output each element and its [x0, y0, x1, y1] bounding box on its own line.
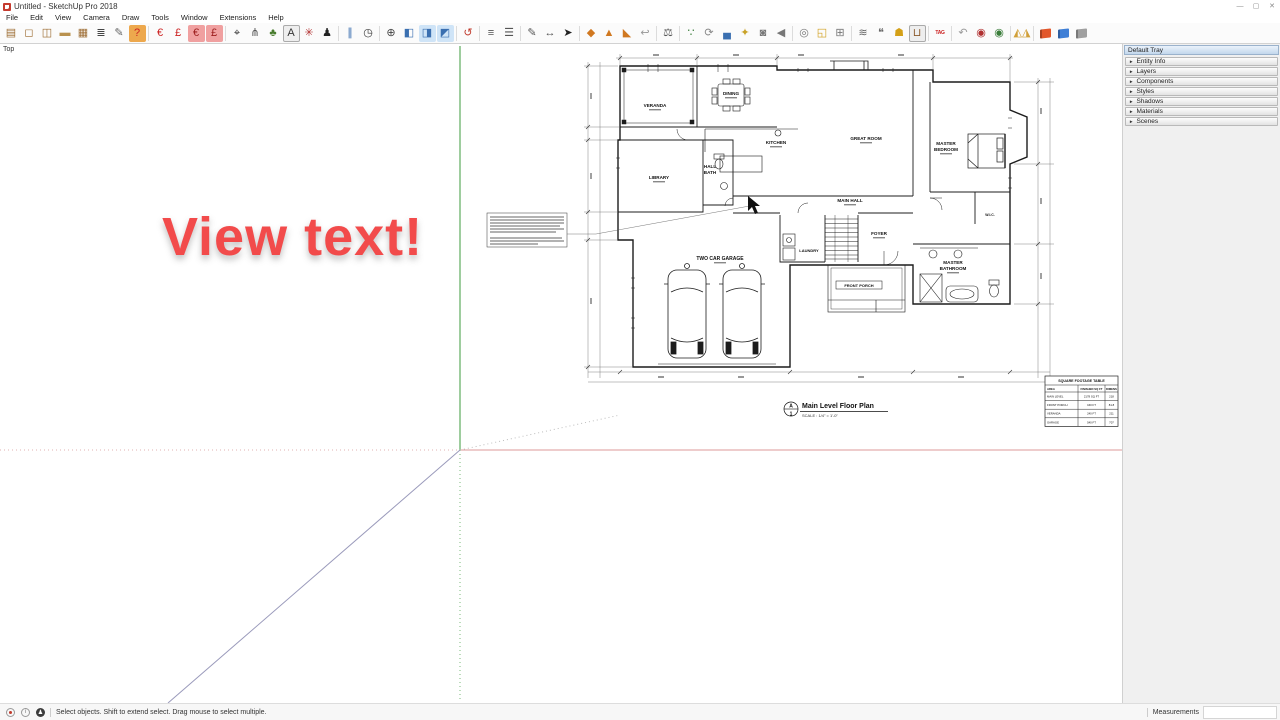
room-label-veranda: VERANDA — [644, 103, 667, 108]
sqft-cell: 160 FT — [1087, 403, 1096, 407]
window-title: Untitled - SketchUp Pro 2018 — [14, 2, 118, 11]
sqft-cell: 2178 SQ FT — [1084, 395, 1100, 399]
sandbox-from-scratch-icon[interactable]: ▲ — [601, 25, 618, 42]
car — [664, 264, 710, 359]
credits-info-icon[interactable]: i — [21, 708, 30, 717]
sculpture-icon[interactable]: ♟ — [319, 25, 336, 42]
sync-icon[interactable]: ⟳ — [701, 25, 718, 42]
line-spacing-b-icon[interactable]: ☰ — [501, 25, 518, 42]
shield-icon[interactable]: ☗ — [891, 25, 908, 42]
mirror-flip-icon[interactable]: ◭◮ — [1014, 25, 1031, 42]
sqft-table-title: SQUARE FOOTAGE TABLE — [1058, 379, 1105, 383]
menu-draw[interactable]: Draw — [116, 13, 146, 23]
comment-bubble-icon[interactable]: ❝ — [873, 25, 890, 42]
status-divider — [50, 708, 51, 717]
toolbar-separator — [579, 26, 580, 41]
master-bath-fixtures — [920, 248, 999, 302]
tray-title[interactable]: Default Tray — [1124, 45, 1279, 55]
sqft-cell: 707 — [1109, 420, 1114, 424]
default-tray-panel: Default Tray ►Entity Info►Layers►Compone… — [1122, 44, 1280, 703]
title-bar: Untitled - SketchUp Pro 2018 — ▢ ✕ — [0, 0, 1280, 13]
sqft-col-header: FINISHED SQ FT — [1080, 387, 1102, 391]
toolbar-separator — [792, 26, 793, 41]
room-label-library: LIBRARY — [649, 175, 669, 180]
cart-icon[interactable]: ⊔ — [909, 25, 926, 42]
book-blue-icon[interactable] — [1055, 25, 1072, 42]
status-bar: i ♟ Select objects. Shift to extend sele… — [0, 703, 1280, 720]
tray-section-shadows[interactable]: ►Shadows — [1125, 97, 1278, 106]
plan-title-block: A 1 Main Level Floor Plan SCALE : 1/4" =… — [784, 402, 888, 418]
expand-arrow-icon: ► — [1129, 109, 1133, 114]
room-label-wic: W.I.C. — [985, 213, 995, 217]
blue-axis — [168, 450, 460, 703]
book-red-icon[interactable] — [1037, 25, 1054, 42]
leaf-icon[interactable]: ♣ — [265, 25, 282, 42]
menu-window[interactable]: Window — [175, 13, 214, 23]
line-spacing-a-icon[interactable]: ≡ — [483, 25, 500, 42]
sqft-cell: 211 — [1109, 412, 1114, 416]
expand-arrow-icon: ► — [1129, 59, 1133, 64]
toolbar-separator — [928, 26, 929, 41]
section-planes-icon[interactable]: ∥ — [342, 25, 359, 42]
tray-section-label: Entity Info — [1136, 58, 1165, 65]
maximize-button[interactable]: ▢ — [1248, 0, 1264, 13]
room-label-garage: TWO CAR GARAGE — [696, 256, 744, 262]
tray-section-label: Layers — [1136, 68, 1156, 75]
select-arrow-icon[interactable]: ➤ — [560, 25, 577, 42]
scale-balance-icon[interactable]: ⚖ — [660, 25, 677, 42]
eyedropper-icon[interactable]: ✎ — [111, 25, 128, 42]
sheet-mark-letter: A — [789, 404, 793, 410]
label-box-icon[interactable]: A — [283, 25, 300, 42]
toolbar-separator — [379, 26, 380, 41]
video-annotation-text: View text! — [162, 206, 423, 268]
toolbar-separator — [1010, 26, 1011, 41]
menu-view[interactable]: View — [49, 13, 77, 23]
window-frame-icon[interactable]: ◫ — [39, 25, 56, 42]
pliers-icon[interactable]: ⋔ — [247, 25, 264, 42]
plan-title: Main Level Floor Plan — [802, 403, 874, 410]
menu-file[interactable]: File — [0, 13, 24, 23]
toolbar-separator — [851, 26, 852, 41]
expand-arrow-icon: ► — [1129, 69, 1133, 74]
drawing-viewport[interactable]: Top — [0, 44, 1122, 703]
measurements-label: Measurements — [1153, 709, 1199, 716]
toolbar: ▤◻◫▬▦≣✎?€£€£⌖⋔♣A✳♟∥◷⊕◧◨◩↺≡☰✎↔➤◆▲◣↩⚖∵⟳▄✦◙… — [0, 23, 1280, 44]
sqft-col-header: AREA — [1047, 387, 1055, 391]
status-hint: Select objects. Shift to extend select. … — [56, 709, 267, 716]
menu-camera[interactable]: Camera — [77, 13, 116, 23]
expand-arrow-icon: ► — [1129, 79, 1133, 84]
tray-section-scenes[interactable]: ►Scenes — [1125, 117, 1278, 126]
tray-section-label: Scenes — [1136, 118, 1158, 125]
measurements-input[interactable] — [1203, 706, 1277, 719]
room-label-laundry: LAUNDRY — [799, 248, 819, 253]
sketchup-logo-icon — [3, 3, 11, 11]
expand-arrow-icon: ► — [1129, 99, 1133, 104]
grid-box-icon[interactable]: ⊞ — [832, 25, 849, 42]
room-label-foyer: FOYER — [871, 231, 888, 236]
pan-cube-icon[interactable]: ◨ — [419, 25, 436, 42]
toolbar-separator — [1033, 26, 1034, 41]
book-gray-icon[interactable] — [1073, 25, 1090, 42]
walk-icon[interactable]: ∵ — [683, 25, 700, 42]
room-label-front-porch: FRONT PORCH — [844, 283, 873, 288]
sqft-cell: 218 — [1109, 395, 1114, 399]
orbit-cube-icon[interactable]: ◧ — [401, 25, 418, 42]
sqft-cell: VERANDA — [1047, 412, 1061, 416]
close-button[interactable]: ✕ — [1264, 0, 1280, 13]
sandbox-smoove-icon[interactable]: ◣ — [619, 25, 636, 42]
room-label-master-bedroom: BEDROOM — [934, 147, 958, 152]
note-leader-line — [567, 205, 755, 234]
key-icon[interactable]: ✦ — [737, 25, 754, 42]
room-label-main-hall: MAIN HALL — [837, 198, 862, 203]
menu-extensions[interactable]: Extensions — [214, 13, 263, 23]
room-label-hall-bath: BATH — [704, 170, 717, 175]
toolbar-separator — [520, 26, 521, 41]
sheet-mark-number: 1 — [790, 412, 793, 418]
sandbox-back-icon[interactable]: ↩ — [637, 25, 654, 42]
menu-edit[interactable]: Edit — [24, 13, 49, 23]
clock-icon[interactable]: ◷ — [360, 25, 377, 42]
car-icon[interactable]: ▄ — [719, 25, 736, 42]
tray-section-label: Components — [1136, 78, 1173, 85]
sqft-cell: 81.8 — [1109, 403, 1115, 407]
report-list-icon[interactable]: ≣ — [93, 25, 110, 42]
grille-icon[interactable]: ▦ — [75, 25, 92, 42]
room-label-master-bath: MASTER — [943, 260, 963, 265]
estimate-euro-a-icon[interactable]: € — [152, 25, 169, 42]
outer-walls — [618, 66, 1027, 367]
mouse-cursor — [748, 196, 760, 214]
tray-section-entity-info[interactable]: ►Entity Info — [1125, 57, 1278, 66]
room-label-master-bath: BATHROOM — [940, 266, 967, 271]
sandbox-from-contours-icon[interactable]: ◆ — [583, 25, 600, 42]
toolbar-separator — [656, 26, 657, 41]
sqft-cell: 540 FT — [1087, 420, 1096, 424]
minimize-button[interactable]: — — [1232, 0, 1248, 13]
speaker-icon[interactable]: ◀ — [773, 25, 790, 42]
film-reel-icon[interactable]: ◎ — [796, 25, 813, 42]
toolbar-separator — [456, 26, 457, 41]
toolbar-separator — [479, 26, 480, 41]
estimate-euro-b-icon[interactable]: € — [188, 25, 205, 42]
tray-section-components[interactable]: ►Components — [1125, 77, 1278, 86]
stairs — [825, 215, 858, 262]
axes-tool-icon[interactable]: ✳ — [301, 25, 318, 42]
menu-bar: FileEditViewCameraDrawToolsWindowExtensi… — [0, 13, 1280, 23]
estimate-pound-b-icon[interactable]: £ — [206, 25, 223, 42]
interior-walls — [618, 66, 1010, 262]
status-divider — [1147, 708, 1148, 717]
room-label-kitchen: KITCHEN — [766, 140, 787, 145]
room-label-hall-bath: HALL — [704, 164, 716, 169]
tray-sections: ►Entity Info►Layers►Components►Styles►Sh… — [1123, 57, 1280, 126]
sqft-table: SQUARE FOOTAGE TABLEAREAFINISHED SQ FTDI… — [1045, 376, 1118, 426]
tray-section-layers[interactable]: ►Layers — [1125, 67, 1278, 76]
cabinet-icon[interactable]: ▤ — [3, 25, 20, 42]
bed — [968, 134, 1005, 168]
room-label-master-bedroom: MASTER — [936, 141, 956, 146]
geolocation-status-icon[interactable] — [6, 708, 15, 717]
toolbar-separator — [225, 26, 226, 41]
parts-box-icon[interactable]: ◱ — [814, 25, 831, 42]
zoom-cube-icon[interactable]: ◩ — [437, 25, 454, 42]
menu-tools[interactable]: Tools — [145, 13, 175, 23]
menu-help[interactable]: Help — [262, 13, 289, 23]
tray-section-label: Styles — [1136, 88, 1154, 95]
tag-icon[interactable]: TAG — [932, 25, 949, 42]
help-door-icon[interactable]: ? — [129, 25, 146, 42]
sqft-cell: FRONT PORCH — [1047, 403, 1067, 407]
user-account-icon[interactable]: ♟ — [36, 708, 45, 717]
room-label-great-room: GREAT ROOM — [850, 136, 881, 141]
sqft-cell: MAIN LEVEL — [1047, 395, 1064, 399]
sqft-col-header: DIMENS — [1106, 387, 1117, 391]
tray-section-styles[interactable]: ►Styles — [1125, 87, 1278, 96]
estimate-pound-a-icon[interactable]: £ — [170, 25, 187, 42]
toolbar-separator — [338, 26, 339, 41]
tray-section-label: Materials — [1136, 108, 1162, 115]
pencil-icon[interactable]: ✎ — [524, 25, 541, 42]
rotate-red-icon[interactable]: ↺ — [460, 25, 477, 42]
door-icon[interactable]: ◻ — [21, 25, 38, 42]
camera-icon[interactable]: ◙ — [755, 25, 772, 42]
dimension-tool-icon[interactable]: ↔ — [542, 25, 559, 42]
expand-arrow-icon: ► — [1129, 119, 1133, 124]
expand-arrow-icon: ► — [1129, 89, 1133, 94]
sliders-icon[interactable]: ≋ — [855, 25, 872, 42]
room-label-dining: DINING — [723, 91, 740, 96]
probe-icon[interactable]: ⌖ — [229, 25, 246, 42]
toolbar-separator — [951, 26, 952, 41]
stamp-green-icon[interactable]: ◉ — [991, 25, 1008, 42]
stamp-red-icon[interactable]: ◉ — [973, 25, 990, 42]
tray-section-label: Shadows — [1136, 98, 1163, 105]
tray-section-materials[interactable]: ►Materials — [1125, 107, 1278, 116]
plan-scale: SCALE : 1/4" = 1'-0" — [802, 413, 839, 418]
floor-plan-drawing: VERANDA DINING KITCHEN GREAT ROOM LIBRAR… — [478, 48, 1122, 448]
sqft-cell: GARAGE — [1047, 420, 1059, 424]
compass-icon[interactable]: ⊕ — [383, 25, 400, 42]
toolbar-separator — [148, 26, 149, 41]
undo-gray-icon[interactable]: ↶ — [955, 25, 972, 42]
toolbar-separator — [679, 26, 680, 41]
board-icon[interactable]: ▬ — [57, 25, 74, 42]
sqft-cell: 240 FT — [1087, 412, 1096, 416]
car — [719, 264, 765, 359]
